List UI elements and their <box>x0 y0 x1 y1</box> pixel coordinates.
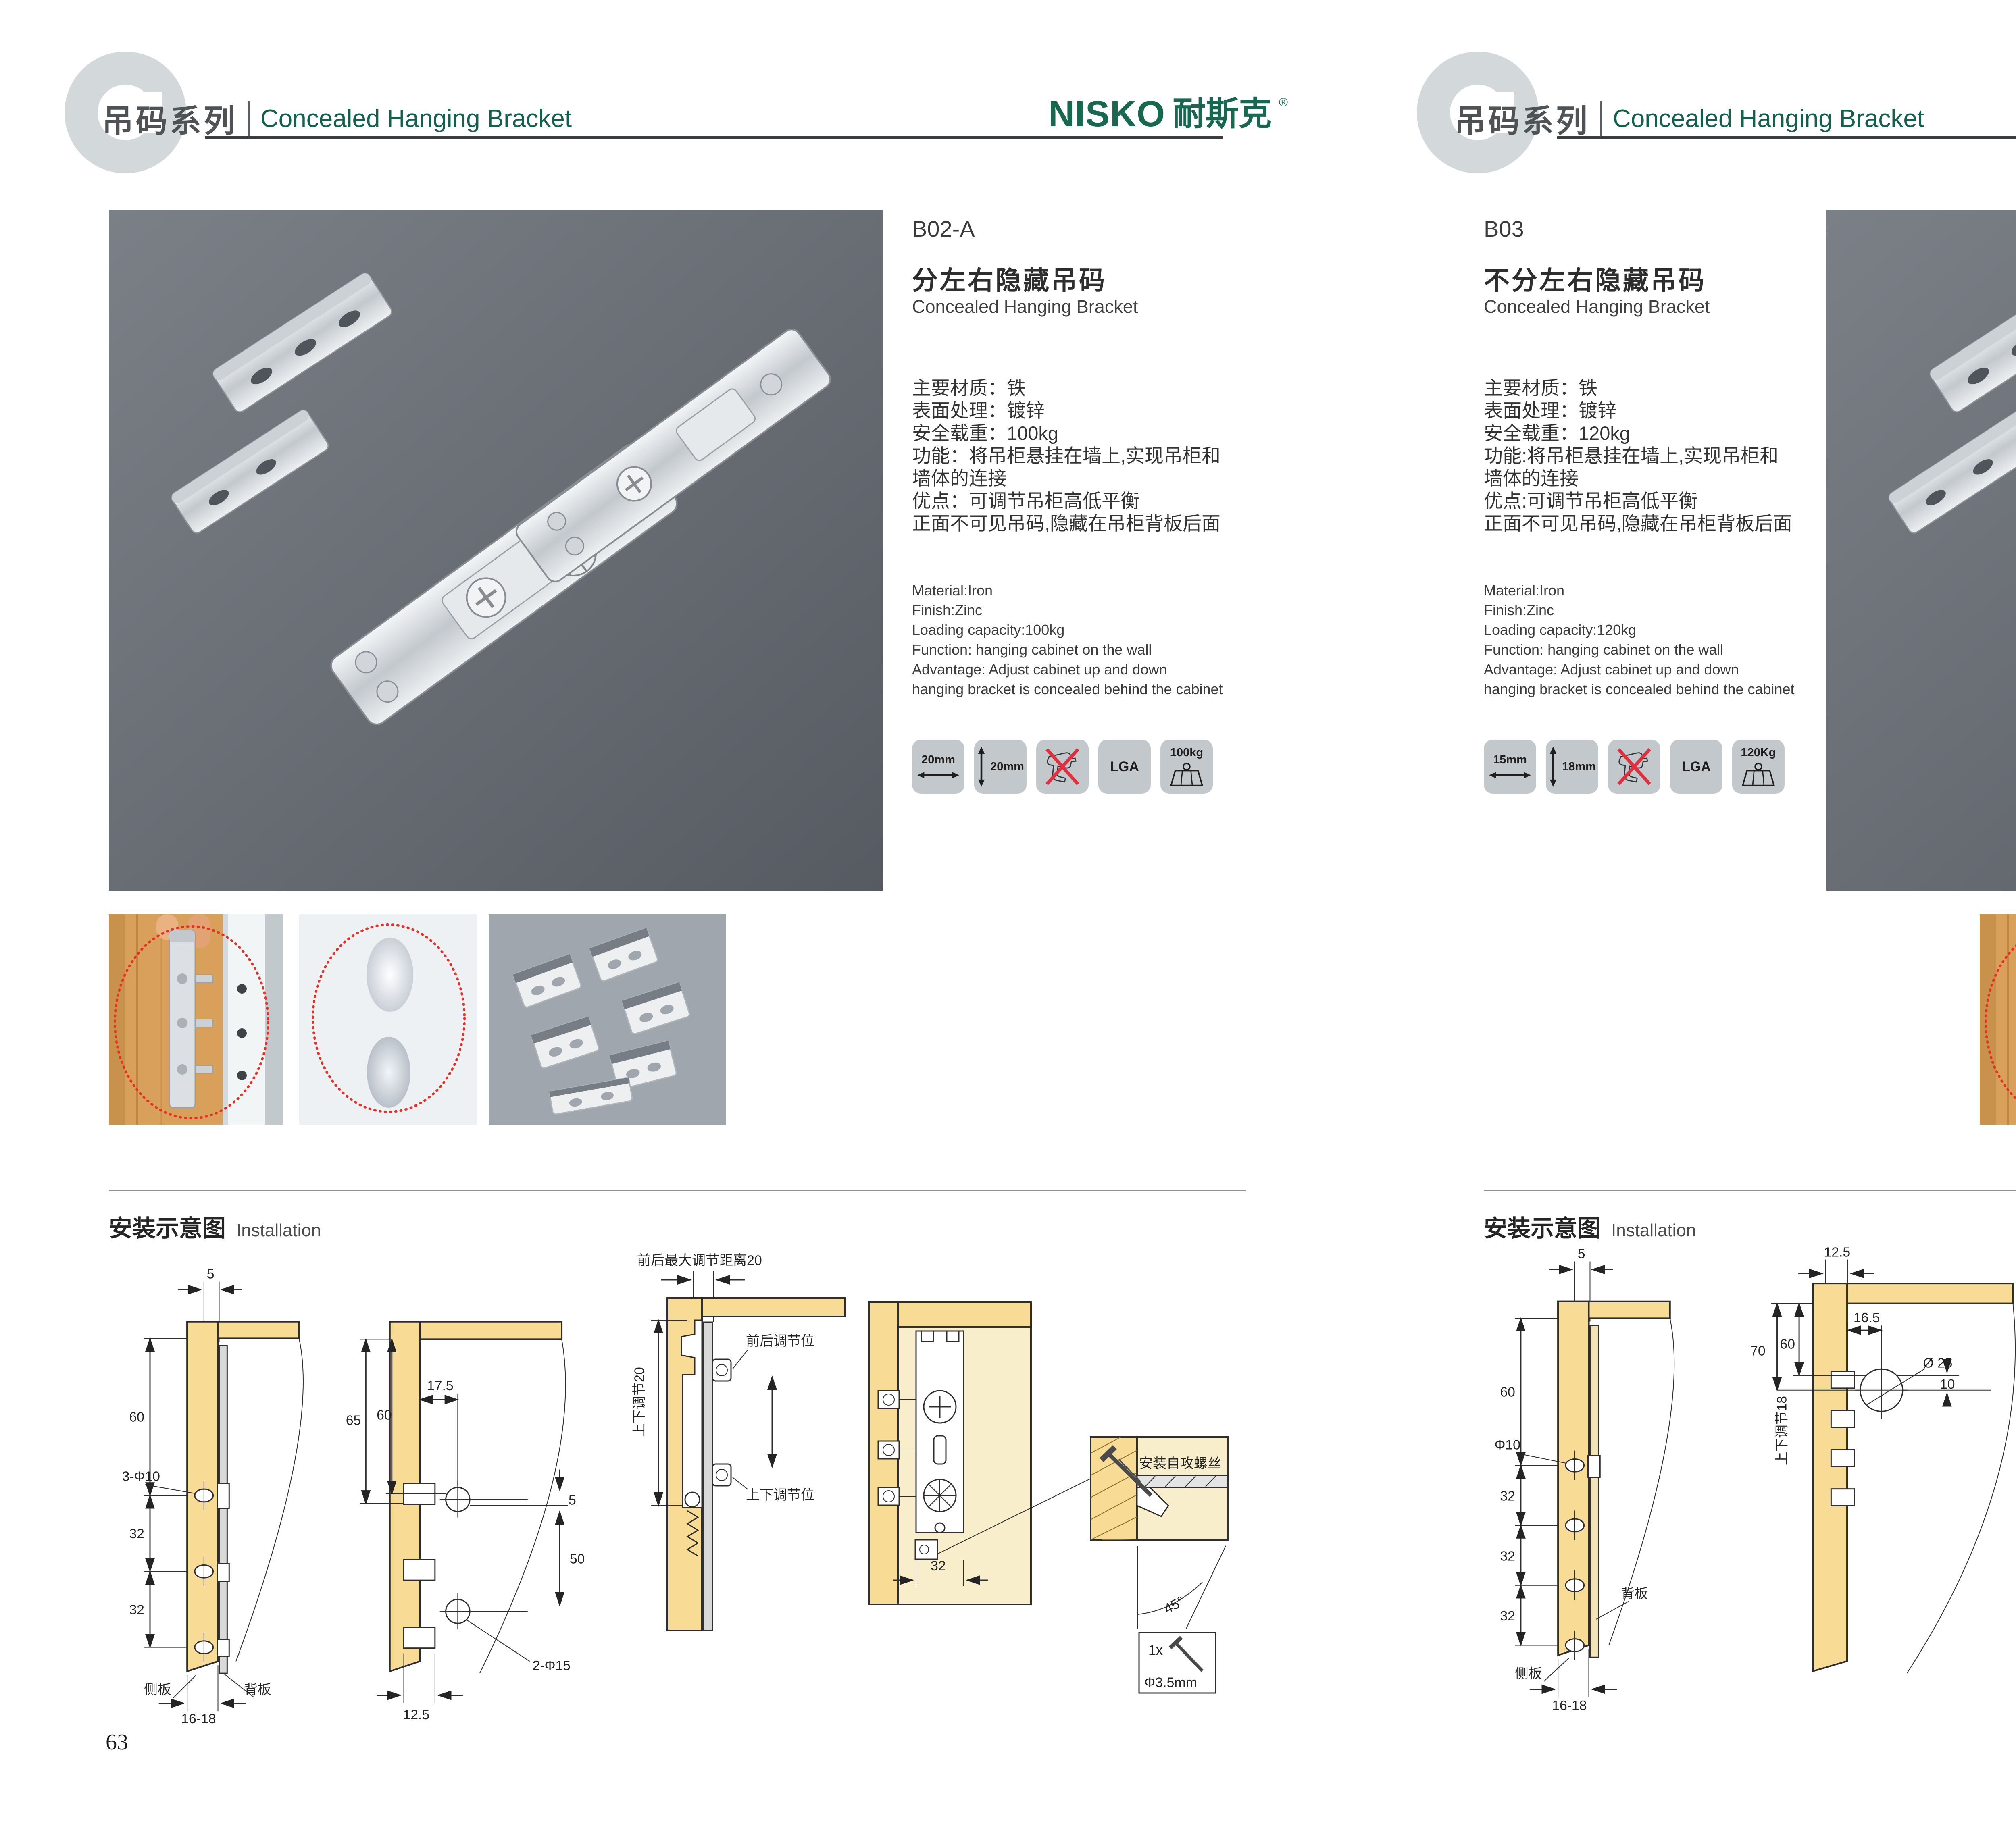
series-title-en: Concealed Hanging Bracket <box>1613 104 1924 133</box>
header-rule <box>1557 136 2016 139</box>
dim-label: 32 <box>1500 1548 1515 1564</box>
dim-label: 60 <box>1780 1337 1795 1352</box>
product-photo-b03 <box>1826 210 2016 891</box>
screw-label: 安装自攻螺丝 <box>1139 1456 1221 1471</box>
feature-badges: 15mm 18mm LGA <box>1484 740 1785 794</box>
dim-label: 70 <box>1750 1344 1765 1359</box>
header-rule <box>205 136 1223 139</box>
spec-line: hanging bracket is concealed behind the … <box>1484 679 1795 699</box>
vertical-arrow-icon <box>1548 747 1558 787</box>
installation-header: 安装示意图 Installation <box>109 1209 321 1243</box>
dim-label: 前后最大调节距离20 <box>637 1253 762 1268</box>
dim-label: 17.5 <box>427 1378 454 1394</box>
spec-line: Advantage: Adjust cabinet up and down <box>1484 659 1795 679</box>
spec-line: Loading capacity:120kg <box>1484 620 1795 640</box>
spec-line: 优点:可调节吊柜高低平衡 <box>1484 490 1792 512</box>
vertical-arrow-icon <box>977 747 986 787</box>
page-header: 吊码系列 Concealed Hanging Bracket <box>102 96 572 141</box>
dim-label: 50 <box>570 1551 585 1566</box>
spec-line: 主要材质：铁 <box>1484 377 1792 399</box>
badge-load: 120Kg <box>1732 740 1785 794</box>
badge-width: 20mm <box>912 740 964 794</box>
part-label: 前后调节位 <box>746 1333 814 1349</box>
product-code: B02-A <box>912 216 1235 242</box>
spec-line: 正面不可见吊码,隐藏在吊柜背板后面 <box>1484 512 1792 535</box>
installation-title-cn: 安装示意图 <box>109 1209 226 1243</box>
brand-logo-latin: NISKO <box>1048 96 1165 132</box>
badge-height: 18mm <box>1546 740 1598 794</box>
spec-line: Advantage: Adjust cabinet up and down <box>912 659 1223 679</box>
dim-label: 60 <box>377 1408 392 1423</box>
dim-label: 32 <box>129 1602 144 1617</box>
part-label: 侧板 <box>1515 1666 1542 1681</box>
product-title-cn: 不分左右隐藏吊码 <box>1484 260 1706 297</box>
spec-line: 优点：可调节吊柜高低平衡 <box>912 490 1220 512</box>
installation-header: 安装示意图 Installation <box>1484 1209 1696 1243</box>
dim-label: 60 <box>1500 1385 1515 1400</box>
badge-cert: LGA <box>1670 740 1722 794</box>
dim-label: 上下调节20 <box>632 1367 647 1437</box>
spec-line: Material:Iron <box>1484 580 1795 600</box>
thumb-install-photo <box>1980 914 2016 1125</box>
dim-label: 65 <box>346 1412 361 1428</box>
spec-line: 安全载重：120kg <box>1484 422 1792 445</box>
dim-label: 32 <box>1500 1489 1515 1504</box>
hole-label: 2-Φ15 <box>533 1658 571 1673</box>
badge-no-drill <box>1036 740 1089 794</box>
badge-width: 15mm <box>1484 740 1536 794</box>
no-drill-icon <box>1044 746 1081 787</box>
badge-cert: LGA <box>1098 740 1151 794</box>
dim-label: 上下调节18 <box>1774 1396 1789 1465</box>
product-info-b03: B03 不分左右隐藏吊码 Concealed Hanging Bracket 主… <box>1484 216 1806 242</box>
product-title-cn: 分左右隐藏吊码 <box>912 260 1107 297</box>
no-drill-icon <box>1616 746 1653 787</box>
section-divider <box>1484 1190 2016 1191</box>
dim-label: 16-18 <box>181 1711 216 1725</box>
spec-line: 表面处理：镀锌 <box>1484 399 1792 422</box>
installation-title-cn: 安装示意图 <box>1484 1209 1601 1243</box>
thumb-parts-photo <box>489 914 726 1125</box>
diagram-side-drilling: 5 60 32 32 3-Φ1 <box>121 1262 363 1725</box>
spec-line: 功能：将吊柜悬挂在墙上,实现吊柜和 <box>912 445 1220 467</box>
diagram-hole-positions: 12.5 70 60 16.5 Ø 25 10 上下 <box>1734 1242 2016 1705</box>
series-title-en: Concealed Hanging Bracket <box>260 104 572 133</box>
badge-no-drill <box>1608 740 1660 794</box>
dim-label: 12.5 <box>403 1707 430 1722</box>
spec-line: 墙体的连接 <box>912 467 1220 490</box>
feature-badges: 20mm 20mm LGA <box>912 740 1213 794</box>
registered-mark: ® <box>1279 96 1288 110</box>
brand-logo-cn: 耐斯克 <box>1173 98 1272 131</box>
diagram-bracket-screw: 32 安装自攻螺丝 45° 1x <box>855 1286 1238 1737</box>
specs-cn: 主要材质：铁 表面处理：镀锌 安全载重：100kg 功能：将吊柜悬挂在墙上,实现… <box>912 377 1220 535</box>
spec-line: Finish:Zinc <box>1484 600 1795 620</box>
series-title-cn: 吊码系列 <box>102 96 237 141</box>
spec-line: 功能:将吊柜悬挂在墙上,实现吊柜和 <box>1484 445 1792 467</box>
diagram-hole-positions: 65 60 17.5 5 50 2-Φ15 12.5 <box>343 1262 605 1725</box>
catalog-spread: 吊码系列 Concealed Hanging Bracket NISKO 耐斯克… <box>0 0 2016 1847</box>
installation-title-en: Installation <box>1611 1221 1696 1241</box>
dim-label: 5 <box>207 1267 215 1282</box>
product-info-b02a: B02-A 分左右隐藏吊码 Concealed Hanging Bracket … <box>912 216 1235 242</box>
spec-line: 墙体的连接 <box>1484 467 1792 490</box>
spec-line: 正面不可见吊码,隐藏在吊柜背板后面 <box>912 512 1220 535</box>
part-label: 背板 <box>244 1682 271 1697</box>
spec-line: Finish:Zinc <box>912 600 1223 620</box>
product-code: B03 <box>1484 216 1806 242</box>
dim-label: 12.5 <box>1824 1245 1851 1260</box>
installation-title-en: Installation <box>236 1221 321 1241</box>
product-title-en: Concealed Hanging Bracket <box>912 296 1138 317</box>
series-title-cn: 吊码系列 <box>1454 96 1590 141</box>
dim-label: 60 <box>129 1410 144 1425</box>
part-label: 上下调节位 <box>746 1487 814 1503</box>
specs-en: Material:Iron Finish:Zinc Loading capaci… <box>1484 580 1795 699</box>
spec-line: hanging bracket is concealed behind the … <box>912 679 1223 699</box>
diagram-side-drilling: 5 60 32 32 32 <box>1492 1242 1734 1717</box>
angle-label: 45° <box>1162 1593 1187 1617</box>
badge-height: 20mm <box>974 740 1027 794</box>
hole-label: Ø 25 <box>1923 1355 1952 1371</box>
catalog-page-right: 吊码系列 Concealed Hanging Bracket NISKO 耐斯克… <box>1352 0 2016 1847</box>
page-header: 吊码系列 Concealed Hanging Bracket <box>1454 96 1924 141</box>
catalog-page-left: 吊码系列 Concealed Hanging Bracket NISKO 耐斯克… <box>0 0 1352 1847</box>
product-photo-b02a <box>109 210 883 891</box>
spec-line: 主要材质：铁 <box>912 377 1220 399</box>
dim-label: 32 <box>1500 1608 1515 1624</box>
spec-line: Material:Iron <box>912 580 1223 600</box>
horizontal-arrow-icon <box>1489 770 1531 780</box>
section-divider <box>109 1190 1246 1191</box>
hole-label: 3-Φ10 <box>122 1468 160 1484</box>
weight-icon <box>1741 763 1776 788</box>
dim-label: 32 <box>931 1558 946 1574</box>
spec-line: Loading capacity:100kg <box>912 620 1223 640</box>
header-divider <box>1600 101 1602 136</box>
part-label: 侧板 <box>144 1682 171 1697</box>
brand-logo: NISKO 耐斯克 ® <box>1048 96 1288 132</box>
diagram-adjustment: 前后最大调节距离20 上下调节20 前后调节位 上下调节位 <box>627 1242 853 1653</box>
page-number: 63 <box>106 1729 128 1755</box>
header-divider <box>248 101 250 136</box>
dim-label: 5 <box>569 1493 576 1508</box>
badge-load: 100kg <box>1160 740 1213 794</box>
part-label: 背板 <box>1621 1586 1648 1602</box>
weight-icon <box>1169 763 1204 788</box>
horizontal-arrow-icon <box>917 770 959 780</box>
dim-label: 16.5 <box>1854 1310 1880 1325</box>
spec-line: 表面处理：镀锌 <box>912 399 1220 422</box>
dim-label: 10 <box>1940 1377 1955 1392</box>
specs-en: Material:Iron Finish:Zinc Loading capaci… <box>912 580 1223 699</box>
specs-cn: 主要材质：铁 表面处理：镀锌 安全载重：120kg 功能:将吊柜悬挂在墙上,实现… <box>1484 377 1792 535</box>
hole-label: Φ10 <box>1494 1437 1520 1453</box>
product-title-en: Concealed Hanging Bracket <box>1484 296 1710 317</box>
dim-label: 5 <box>1578 1246 1585 1262</box>
spec-line: 安全载重：100kg <box>912 422 1220 445</box>
qty-label: 1x <box>1148 1643 1163 1658</box>
dim-label: 16-18 <box>1552 1698 1587 1713</box>
dia-label: Φ3.5mm <box>1144 1675 1197 1690</box>
thumb-install-photo <box>109 914 283 1125</box>
thumb-concealed-result <box>299 914 477 1125</box>
spec-line: Function: hanging cabinet on the wall <box>912 640 1223 659</box>
spec-line: Function: hanging cabinet on the wall <box>1484 640 1795 659</box>
dim-label: 32 <box>129 1526 144 1541</box>
